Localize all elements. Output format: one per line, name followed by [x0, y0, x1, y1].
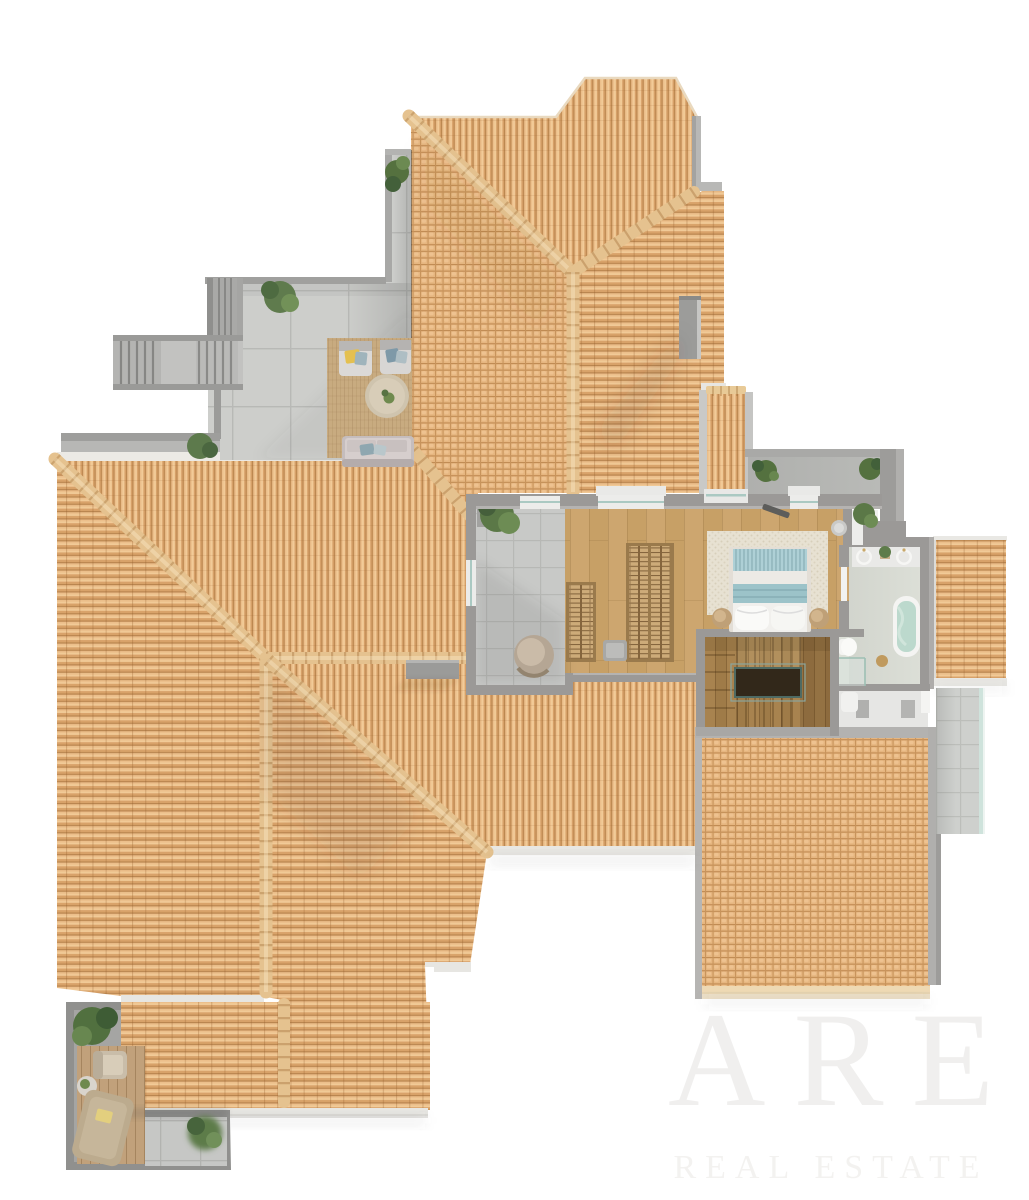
svg-text:REAL ESTATE: REAL ESTATE [673, 1149, 988, 1186]
svg-text:ARE: ARE [668, 986, 1022, 1135]
